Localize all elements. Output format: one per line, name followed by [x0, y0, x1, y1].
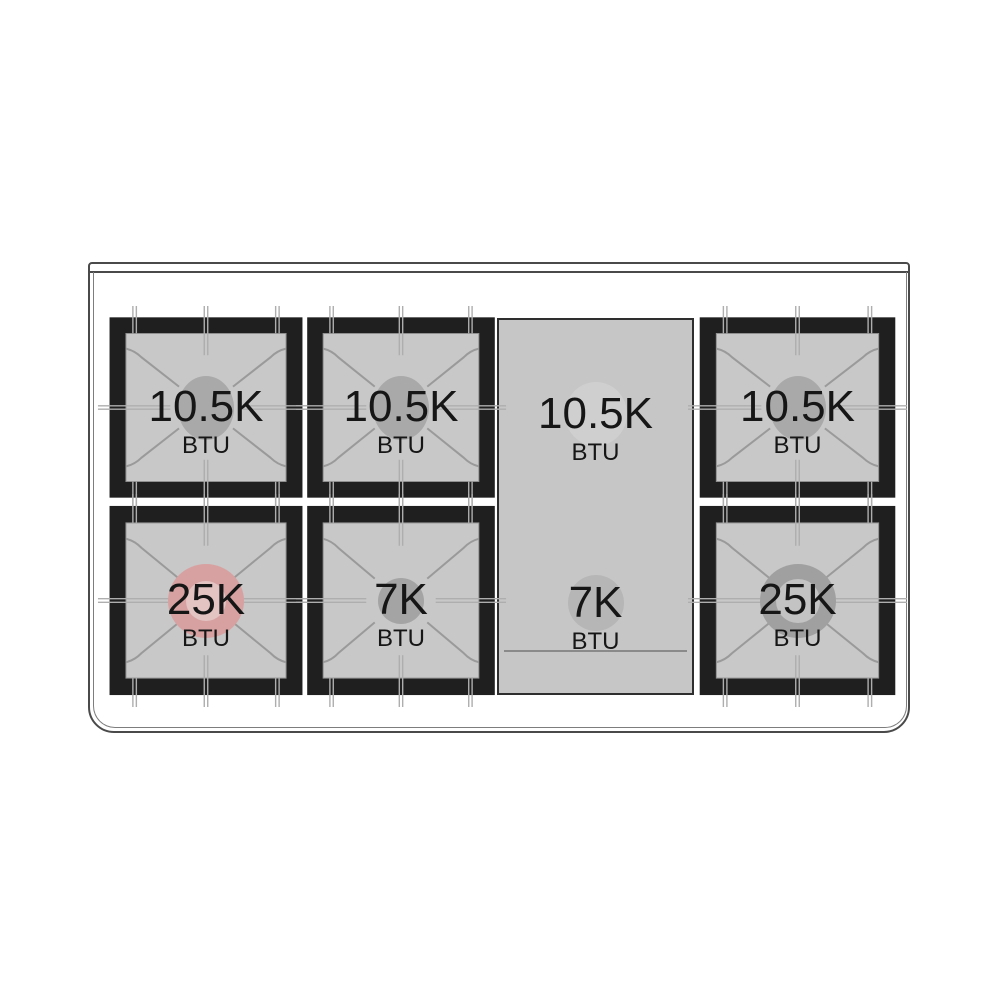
btu-value: 25K — [167, 578, 245, 622]
burner-rear-right: 10.5K BTU — [700, 318, 895, 497]
burner-front-left: 25K BTU — [110, 506, 302, 695]
burner-front-right: 25K BTU — [700, 506, 895, 695]
burner-btu-label: 10.5K BTU — [700, 332, 895, 511]
btu-unit: BTU — [377, 627, 425, 651]
btu-unit: BTU — [182, 434, 230, 458]
btu-unit: BTU — [572, 441, 620, 465]
burner-btu-label: 25K BTU — [700, 520, 895, 709]
btu-unit: BTU — [774, 434, 822, 458]
burner-btu-label: 25K BTU — [110, 520, 302, 709]
btu-unit: BTU — [182, 627, 230, 651]
btu-value: 10.5K — [538, 392, 653, 436]
btu-value: 7K — [374, 578, 428, 622]
btu-unit: BTU — [774, 627, 822, 651]
cooktop-diagram: 10.5K BTU 7K BTU 10.5K BTU 10.5K BTU 10.… — [0, 0, 1000, 1000]
burner-front-center: 7K BTU — [308, 506, 494, 695]
btu-value: 7K — [569, 581, 623, 625]
btu-value: 10.5K — [740, 385, 855, 429]
griddle-panel: 10.5K BTU 7K BTU — [497, 318, 694, 695]
burner-btu-label: 10.5K BTU — [110, 332, 302, 511]
btu-value: 25K — [758, 578, 836, 622]
btu-value: 10.5K — [344, 385, 459, 429]
griddle-rear-btu-label: 10.5K BTU — [499, 392, 692, 465]
btu-unit: BTU — [377, 434, 425, 458]
btu-unit: BTU — [572, 630, 620, 654]
burner-btu-label: 7K BTU — [308, 520, 494, 709]
burner-rear-center: 10.5K BTU — [308, 318, 494, 497]
burner-btu-label: 10.5K BTU — [308, 332, 494, 511]
btu-value: 10.5K — [149, 385, 264, 429]
burner-rear-left: 10.5K BTU — [110, 318, 302, 497]
griddle-front-btu-label: 7K BTU — [499, 581, 692, 654]
